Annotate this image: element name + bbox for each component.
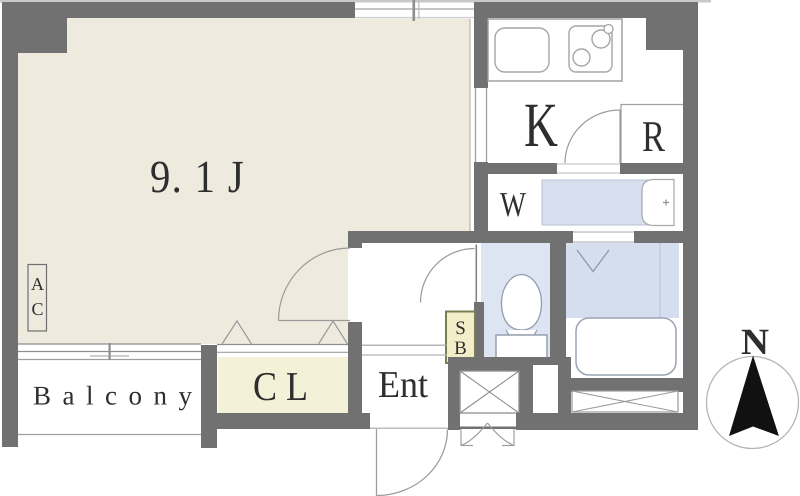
svg-text:C L: C L [253, 363, 308, 409]
svg-text:A: A [31, 274, 44, 294]
svg-text:C: C [31, 299, 43, 319]
svg-text:W: W [500, 185, 526, 224]
svg-text:S: S [455, 318, 466, 339]
svg-text:R: R [642, 112, 666, 161]
svg-text:9. 1 J: 9. 1 J [150, 151, 245, 202]
svg-text:B: B [454, 338, 467, 359]
svg-text:Ent: Ent [378, 364, 428, 406]
svg-text:K: K [524, 90, 558, 160]
